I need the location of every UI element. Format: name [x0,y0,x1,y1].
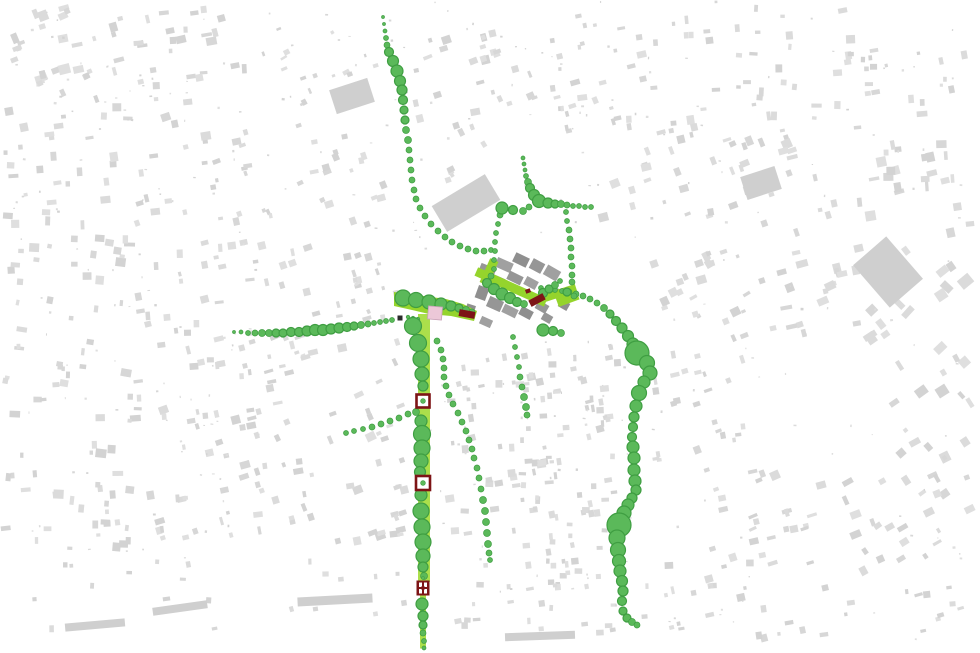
building [818,208,823,213]
building [936,140,947,148]
building [160,112,171,122]
tree-dot [413,196,419,202]
building [228,525,230,528]
building [743,291,751,298]
building [38,23,46,30]
building [492,392,494,394]
building [190,10,199,16]
building [963,474,970,480]
building [276,27,281,31]
building [914,384,929,398]
building [627,63,636,69]
building [243,163,252,168]
building [701,125,704,127]
building [136,308,145,314]
building [50,152,56,161]
building [586,433,591,440]
building [511,84,513,87]
tree-dot [494,231,499,236]
building [308,559,311,565]
building [366,309,371,314]
building [669,625,675,630]
building [396,526,407,534]
building [166,420,168,422]
building [471,369,479,375]
building [608,344,613,350]
tree-dot [564,210,569,215]
building [462,385,468,391]
building [376,193,386,202]
building [248,369,252,375]
building [215,439,224,446]
building [88,269,89,271]
tree-dot [565,219,570,224]
building [554,472,558,479]
building [205,448,214,457]
large-building [740,166,782,200]
building [212,158,221,165]
building [72,471,75,473]
tree-dot [365,321,371,327]
building [301,503,308,512]
building [959,553,961,555]
building [219,478,221,480]
building [261,51,265,56]
building [785,169,792,177]
building [709,156,717,165]
building [880,330,890,340]
tree-dot [239,330,243,334]
building [163,596,171,601]
tree-dot [406,147,412,153]
building [67,79,69,81]
building [230,62,240,69]
building [582,23,587,29]
building [456,381,462,387]
building [39,525,41,527]
building [264,278,270,286]
building [556,53,563,60]
tree-dot [496,202,508,214]
building [239,373,244,379]
building [219,517,224,526]
building [776,268,787,276]
building [952,29,953,31]
building [602,528,608,532]
building [745,348,746,350]
building [550,373,556,378]
building [703,303,705,304]
building [688,182,690,184]
building [600,1,601,3]
building [659,296,670,307]
building [281,66,288,71]
building [66,371,70,378]
building [71,235,78,242]
building [7,162,15,169]
building [200,6,207,14]
building [200,474,202,476]
building [665,562,674,569]
building [313,606,319,611]
building [529,372,534,378]
tree-dot [408,167,414,173]
building [462,445,469,453]
building [917,51,921,55]
building [183,26,187,32]
building [507,600,514,604]
building [729,166,735,175]
building [338,39,340,40]
tree-dot [411,187,417,193]
building [391,39,394,42]
building [676,621,680,626]
building [525,48,526,50]
building [375,268,380,275]
building [786,154,797,161]
building [707,208,714,216]
building [419,236,421,238]
tree-dot [443,383,449,389]
building [846,35,855,44]
building [249,328,252,329]
building [558,469,561,472]
building [736,593,746,602]
tree-dot [567,236,573,242]
building [16,201,18,203]
building [90,583,94,589]
building [267,154,269,156]
building [206,36,218,46]
building [183,144,189,150]
building [21,487,31,492]
building [500,591,501,593]
building [451,527,460,534]
building [182,209,187,215]
building [428,38,433,43]
building [257,241,266,250]
building [571,558,579,565]
building [599,80,607,86]
building [932,489,942,499]
tree-dot [484,530,491,537]
building [46,333,47,335]
building [721,171,722,173]
building [375,227,378,229]
tree-dot [583,205,588,210]
building [4,107,14,116]
building [749,52,757,56]
building [577,94,587,101]
building [5,473,11,481]
building [824,195,826,197]
tree-dot [390,318,395,323]
building [259,488,265,494]
building [521,482,526,488]
building [718,160,721,161]
building [848,52,854,56]
building [825,211,832,220]
building [812,174,817,182]
tree-dot [492,258,497,263]
building [155,559,159,564]
building [310,169,319,175]
building [46,296,53,304]
tree-dot [634,622,640,628]
route-northeast-cluster [496,156,594,215]
building [781,79,787,85]
building [179,279,183,284]
building [670,372,680,378]
building [232,217,240,226]
building [676,278,685,286]
building [363,221,370,228]
building [226,454,228,456]
building [186,74,196,80]
building [512,528,516,534]
building [341,134,348,140]
building [908,437,921,448]
building [718,506,728,513]
building [740,537,742,539]
building [267,379,276,384]
building [284,369,294,376]
building [376,431,382,437]
building [910,535,913,537]
building [395,99,397,100]
building [271,496,280,505]
building [525,561,532,569]
building [736,85,741,89]
building [948,260,950,262]
building [125,525,129,531]
building [602,385,603,386]
building [913,66,915,67]
building [21,238,23,240]
building [673,397,681,404]
tree-dot [606,310,614,318]
building [957,273,975,290]
building [424,248,427,250]
building [478,384,485,388]
building [72,110,74,112]
tree-dot [344,431,349,436]
building [807,512,817,518]
building [202,412,208,419]
tree-dot [446,301,456,311]
building [31,29,34,32]
building [398,509,407,516]
building [401,600,407,606]
tree-dot [446,392,452,398]
building [200,131,211,141]
building [876,554,885,563]
building [874,309,875,311]
building [191,399,192,401]
building [693,389,695,392]
building [92,36,97,42]
building [364,54,367,58]
building [652,387,659,395]
building [215,178,219,183]
building [296,458,303,465]
building [289,341,295,350]
building [575,221,577,223]
building [223,500,225,502]
building [635,237,636,238]
landmark-blocks-layer [65,78,923,641]
building [396,402,405,409]
building [351,298,356,304]
tree-dot [517,374,523,380]
building [758,277,765,284]
building [694,370,702,376]
building [584,584,589,590]
building [473,484,475,486]
building [57,19,58,21]
building [613,48,617,52]
building [332,74,336,78]
building [597,546,603,550]
building [554,415,556,417]
building [290,248,295,256]
building [697,106,699,108]
building [547,348,552,356]
building [546,558,550,563]
building [223,337,226,339]
building [381,286,385,290]
building [854,125,862,129]
building [184,120,185,122]
building [956,363,959,365]
building [767,535,776,540]
building [553,583,558,587]
building [1,525,11,531]
building [491,90,496,95]
tree-dot [372,321,377,326]
building [159,10,169,15]
building [691,590,697,596]
building [8,174,18,179]
building [757,212,759,214]
building [373,611,378,616]
building [254,467,261,476]
building [229,532,234,538]
building [377,262,381,266]
building [759,469,767,478]
building [212,365,214,367]
building [282,98,285,101]
building [922,553,929,560]
building [389,20,392,22]
building [445,494,455,503]
building [115,97,117,98]
building [212,626,218,630]
building [587,409,588,411]
building [56,208,58,210]
building [790,286,791,287]
building [374,574,378,580]
route-site-south-stub [537,324,565,337]
building [309,472,314,477]
building [297,180,304,186]
tree-dot [471,455,477,461]
building [688,32,693,38]
building [586,114,587,117]
building [901,246,911,256]
building [327,435,334,444]
building [838,7,848,14]
building [847,600,855,606]
building [215,362,219,370]
tree-dot [417,205,423,211]
tree-dot [409,177,415,183]
building [952,546,955,549]
building [520,401,522,403]
building [946,586,952,590]
tree-dot [558,279,563,284]
building [444,401,446,402]
building [163,383,164,385]
building [884,64,888,68]
building [451,441,455,446]
building [303,243,313,252]
tree-dot [566,227,572,233]
building [189,363,198,370]
building [69,496,74,505]
building [245,278,255,282]
building [593,23,597,27]
building [182,496,188,500]
building [950,174,954,183]
building [519,472,526,476]
building [704,500,706,502]
tree-dot [476,475,482,481]
building [587,500,593,508]
building [594,509,601,517]
building [131,119,134,121]
tree-dot [614,565,626,577]
building [585,399,594,405]
building [539,413,547,418]
building [769,325,776,331]
building [85,136,94,140]
building [676,526,679,529]
building [213,335,224,342]
building [69,564,73,568]
building [545,548,551,556]
building [645,583,648,589]
building [187,418,196,424]
building [59,379,68,387]
tree-dot [415,534,431,550]
building [673,167,682,177]
tree-dot [416,549,430,563]
building [748,513,758,520]
building [707,583,713,589]
building [755,477,763,483]
building [59,96,62,98]
building [736,53,742,58]
building [293,467,304,475]
building [159,193,161,195]
building [780,129,785,133]
building [883,67,885,69]
building [886,167,895,175]
building [834,101,840,109]
building [460,508,468,513]
building [413,68,419,73]
